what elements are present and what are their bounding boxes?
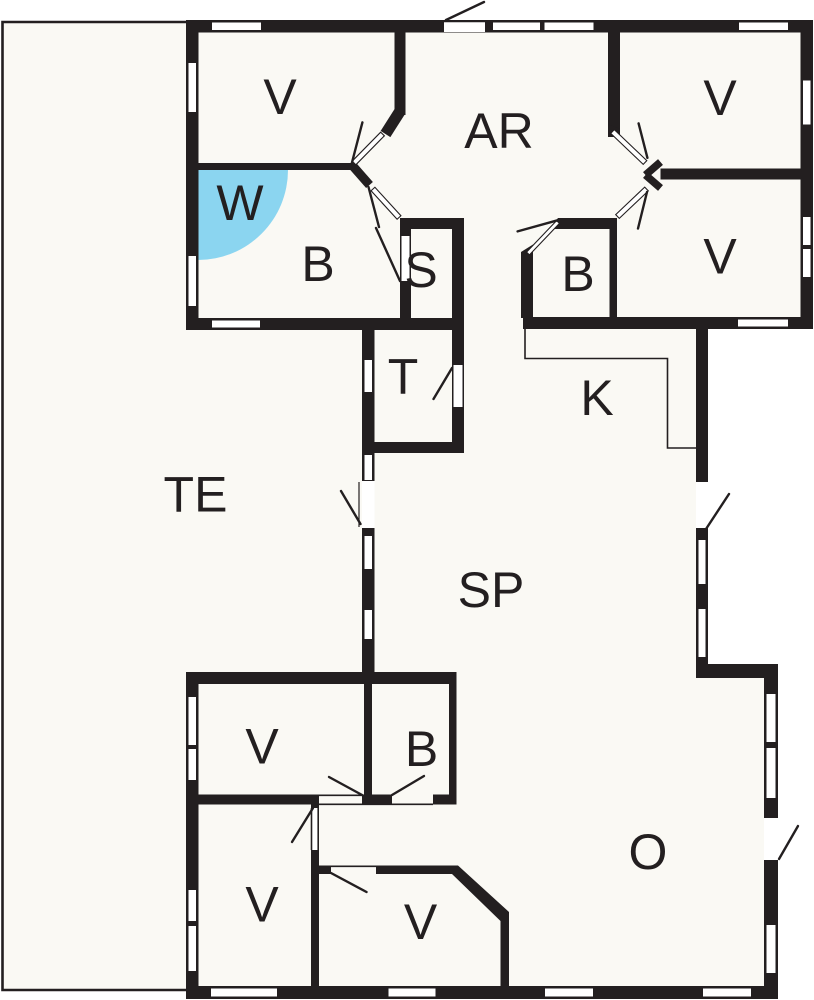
svg-text:W: W <box>216 175 264 231</box>
svg-text:V: V <box>404 894 438 950</box>
svg-text:O: O <box>629 824 668 880</box>
svg-text:AR: AR <box>464 103 533 159</box>
svg-text:TE: TE <box>164 467 228 523</box>
svg-text:V: V <box>245 719 279 775</box>
svg-text:T: T <box>388 349 419 405</box>
svg-text:S: S <box>404 242 437 298</box>
svg-text:SP: SP <box>458 562 525 618</box>
svg-text:V: V <box>263 69 297 125</box>
svg-text:V: V <box>703 229 737 285</box>
svg-text:V: V <box>245 877 279 933</box>
svg-text:B: B <box>561 246 594 302</box>
svg-text:B: B <box>405 721 438 777</box>
svg-text:V: V <box>703 70 737 126</box>
svg-text:B: B <box>301 236 334 292</box>
svg-text:K: K <box>580 370 613 426</box>
